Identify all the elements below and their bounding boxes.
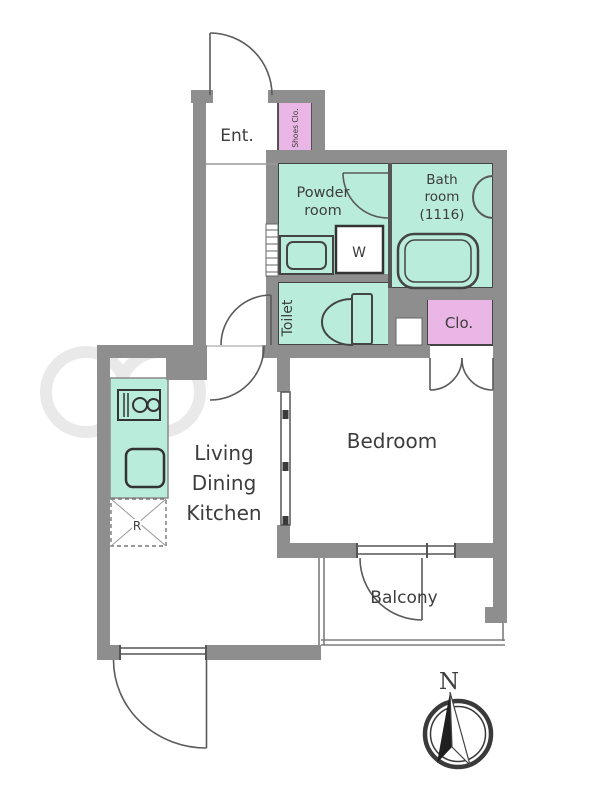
sliding-partition	[281, 392, 290, 525]
floor-plan-drawing: Ent. Shoes Clo. Powder room Bath room (1…	[0, 0, 600, 800]
shoes-closet-label: Shoes Clo.	[291, 108, 300, 147]
ldk-door-arc	[207, 346, 264, 400]
ldk-window	[120, 645, 206, 660]
ldk-terrace-door-arc	[114, 660, 207, 748]
floor-plan-page: Ent. Shoes Clo. Powder room Bath room (1…	[0, 0, 600, 800]
balcony-label: Balcony	[370, 588, 437, 608]
entrance-label: Ent.	[220, 126, 254, 146]
bath-room-label-3: (1116)	[420, 207, 465, 223]
powder-room-label-1: Powder	[296, 185, 349, 201]
bath-room-label-2: room	[425, 189, 460, 205]
powder-bath-divider	[388, 163, 392, 288]
pipe-space-hatch	[266, 224, 278, 276]
washer-label: W	[352, 245, 366, 261]
closet-double-doors	[430, 358, 493, 390]
bedroom-label: Bedroom	[347, 429, 437, 453]
compass-icon	[425, 692, 491, 767]
closet-label: Clo.	[445, 314, 473, 332]
north-label: N	[439, 669, 459, 695]
bath-room-label-1: Bath	[426, 172, 457, 188]
entrance-door-arc	[210, 33, 272, 95]
ldk-label-3: Kitchen	[186, 501, 261, 525]
toilet-door-arc	[221, 295, 271, 345]
wall-notch	[396, 318, 422, 345]
ldk-label-2: Dining	[192, 471, 257, 495]
toilet-label: Toilet	[280, 299, 296, 337]
ldk-label-1: Living	[194, 441, 253, 465]
refrigerator-label: R	[133, 519, 141, 533]
powder-room-label-2: room	[304, 203, 342, 219]
balcony-window	[357, 543, 455, 558]
